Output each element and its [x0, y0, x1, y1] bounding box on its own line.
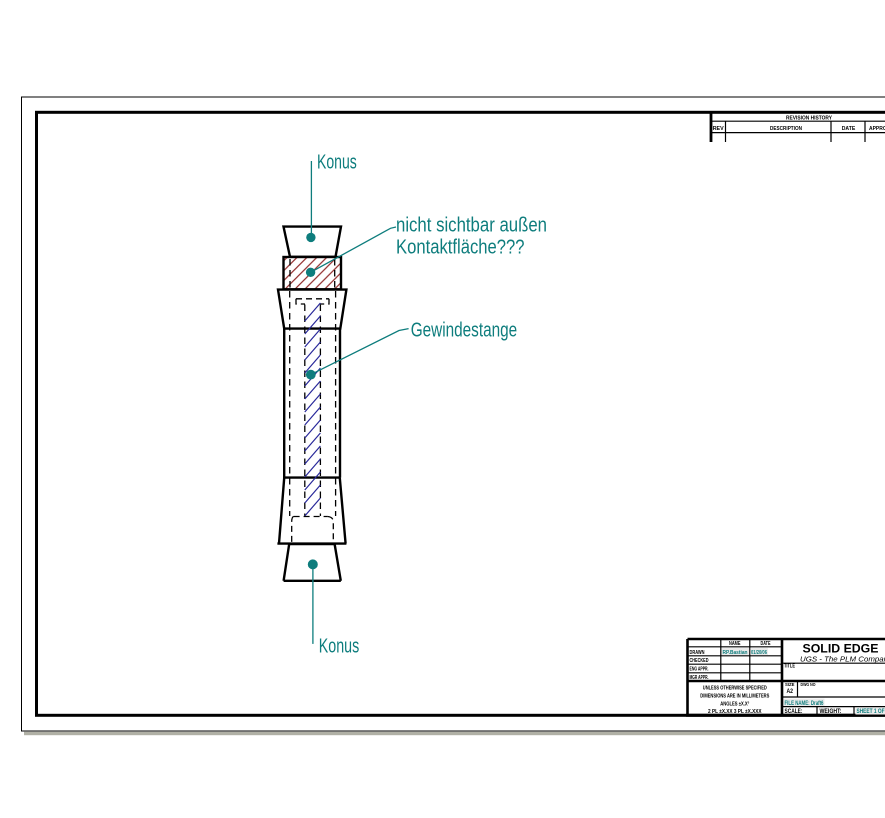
svg-text:WEIGHT:: WEIGHT: [820, 709, 842, 715]
svg-text:NAME: NAME [729, 641, 741, 647]
svg-text:Konus: Konus [319, 636, 359, 658]
svg-text:REVISION HISTORY: REVISION HISTORY [786, 115, 832, 121]
svg-text:TITLE: TITLE [784, 664, 796, 670]
svg-text:APPROVED: APPROVED [869, 126, 885, 132]
svg-text:MGR APPR.: MGR APPR. [690, 675, 709, 681]
svg-text:Konus: Konus [317, 152, 357, 174]
svg-text:ENG APPR.: ENG APPR. [690, 667, 709, 673]
svg-text:SOLID EDGE: SOLID EDGE [803, 643, 879, 655]
svg-text:A2: A2 [787, 688, 794, 695]
svg-text:2 PL ±X.XX 3 PL ±X.XXX: 2 PL ±X.XX 3 PL ±X.XXX [708, 709, 762, 715]
svg-text:DWG NO: DWG NO [801, 682, 816, 687]
svg-text:ANGLES ±X.X°: ANGLES ±X.X° [720, 702, 749, 708]
svg-text:SIZE: SIZE [785, 682, 795, 687]
svg-text:DRAWN: DRAWN [690, 650, 705, 656]
svg-text:Kontaktfläche???: Kontaktfläche??? [396, 237, 525, 259]
svg-text:DATE: DATE [842, 126, 856, 132]
svg-text:DESCRIPTION: DESCRIPTION [770, 126, 802, 132]
svg-text:SCALE:: SCALE: [785, 709, 803, 715]
svg-text:UNLESS OTHERWISE SPECIFIED: UNLESS OTHERWISE SPECIFIED [703, 686, 767, 692]
svg-text:nicht sichtbar außen: nicht sichtbar außen [396, 215, 547, 237]
svg-text:01/20/06: 01/20/06 [751, 650, 767, 656]
svg-text:REV: REV [713, 126, 724, 132]
svg-text:Gewindestange: Gewindestange [411, 319, 518, 341]
svg-text:DATE: DATE [761, 641, 771, 647]
svg-text:UGS - The PLM Company: UGS - The PLM Company [800, 655, 885, 664]
svg-text:FILE NAME: Draft6: FILE NAME: Draft6 [785, 701, 824, 707]
svg-text:SHEET 1 OF 1: SHEET 1 OF 1 [857, 709, 885, 715]
svg-text:RP.Bastian: RP.Bastian [723, 650, 749, 656]
svg-text:CHECKED: CHECKED [690, 658, 709, 664]
svg-text:DIMENSIONS ARE IN MILLIMETERS: DIMENSIONS ARE IN MILLIMETERS [700, 694, 769, 700]
